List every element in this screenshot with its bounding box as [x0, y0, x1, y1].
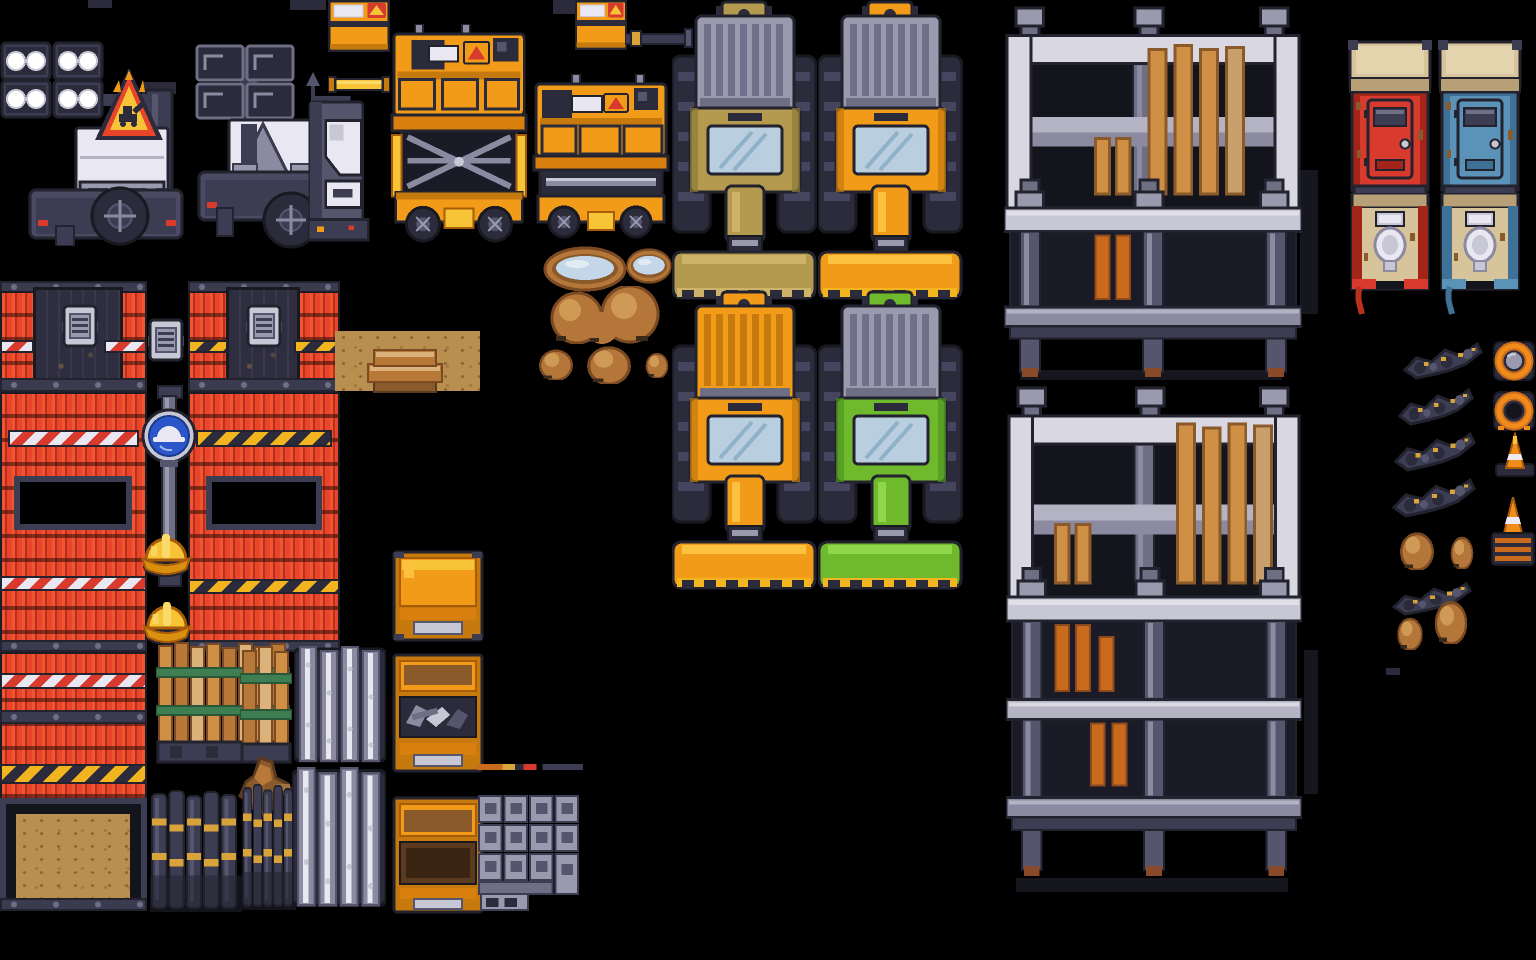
- scaffold-shadow: [1304, 650, 1318, 794]
- gold-beam: [328, 76, 390, 93]
- dirt-mound-pair: [532, 286, 674, 344]
- hazard-stripe-red-white: [0, 576, 147, 591]
- hard-hat: [142, 588, 192, 646]
- edge-stub: [290, 0, 326, 10]
- roof-beam: [0, 640, 147, 652]
- rubble-streak: [1403, 340, 1483, 380]
- hazard-stripe-yellow-black: [188, 579, 340, 594]
- scaffold-two-level: [1004, 6, 1302, 378]
- edge-stub: [88, 0, 112, 8]
- dirt-mound: [641, 350, 673, 378]
- rubble-streak: [1394, 430, 1476, 472]
- rubble-streak: [1392, 476, 1476, 518]
- garage-dirt-floor: [16, 814, 130, 904]
- water-puddle-small: [626, 248, 672, 284]
- rebar-bundle: [150, 790, 242, 912]
- wall-vent: [148, 318, 184, 362]
- scissor-lift-extended: [388, 24, 532, 244]
- hazard-stripe-yellow-black: [188, 340, 228, 353]
- scaffold-three-level: [1006, 386, 1302, 883]
- hazard-stripe-red-white: [0, 673, 147, 689]
- dirt-mound: [578, 342, 640, 384]
- window-opening: [14, 476, 132, 530]
- roof-beam: [0, 710, 147, 724]
- bulldozer-orange-full: [672, 290, 817, 590]
- porta-potty-red-open: [1350, 193, 1430, 315]
- plank-bundle-narrow: [240, 646, 292, 764]
- rebar-bundle: [242, 784, 296, 910]
- white-compressor: [308, 96, 370, 246]
- porta-potty-blue-closed: [1438, 40, 1522, 202]
- porta-potty-red-closed: [1348, 40, 1432, 202]
- dirt-mound: [1393, 528, 1441, 570]
- traffic-cone-on-stack: [1490, 497, 1536, 567]
- generator-box: [328, 0, 390, 52]
- generator-box: [575, 0, 627, 50]
- roof-beam: [0, 898, 147, 911]
- hazard-stripe-red-white: [0, 340, 34, 353]
- hazard-stripe-yellow-black: [0, 764, 147, 784]
- wooden-steps: [366, 346, 444, 394]
- hazard-stripe-red-white: [8, 430, 139, 447]
- cone-top-view-filled: [1492, 336, 1536, 384]
- dirt-mound: [532, 346, 580, 380]
- traffic-cone: [1494, 432, 1536, 478]
- crate-closed: [392, 550, 484, 642]
- hazard-stripe-red-white: [104, 340, 147, 353]
- bulldozer-tan: [672, 0, 817, 300]
- roof-beam: [0, 378, 147, 392]
- scaffold-shadow: [1300, 170, 1318, 314]
- rubble-streak: [1398, 386, 1474, 426]
- edge-stub: [1386, 668, 1400, 675]
- dirt-mound: [1428, 596, 1474, 644]
- cinder-block-stack: [477, 794, 581, 912]
- porta-potty-blue-open: [1440, 193, 1520, 315]
- wall-vent: [62, 304, 98, 348]
- hard-hat: [140, 520, 192, 578]
- bulldozer-orange: [818, 0, 963, 300]
- wall-vent: [246, 304, 282, 348]
- cone-top-view-hole: [1492, 386, 1536, 434]
- spritesheet-canvas: [0, 0, 1536, 960]
- warning-triangle-sign: [93, 66, 165, 146]
- roof-beam: [188, 378, 338, 392]
- steel-pipe-bundle: [294, 645, 386, 765]
- bulldozer-green: [818, 290, 963, 590]
- window-opening: [206, 476, 322, 530]
- hazard-stripe-yellow-black: [196, 430, 332, 447]
- scissor-lift-lowered: [532, 74, 670, 244]
- hazard-stripe-yellow-black: [294, 340, 340, 353]
- crate-open-empty: [392, 796, 484, 914]
- dirt-mound: [1392, 614, 1428, 650]
- crate-open-tools: [392, 653, 484, 773]
- steel-pipe-bundle: [292, 766, 386, 910]
- dirt-mound: [1446, 533, 1478, 569]
- thin-material-strips: [477, 764, 583, 770]
